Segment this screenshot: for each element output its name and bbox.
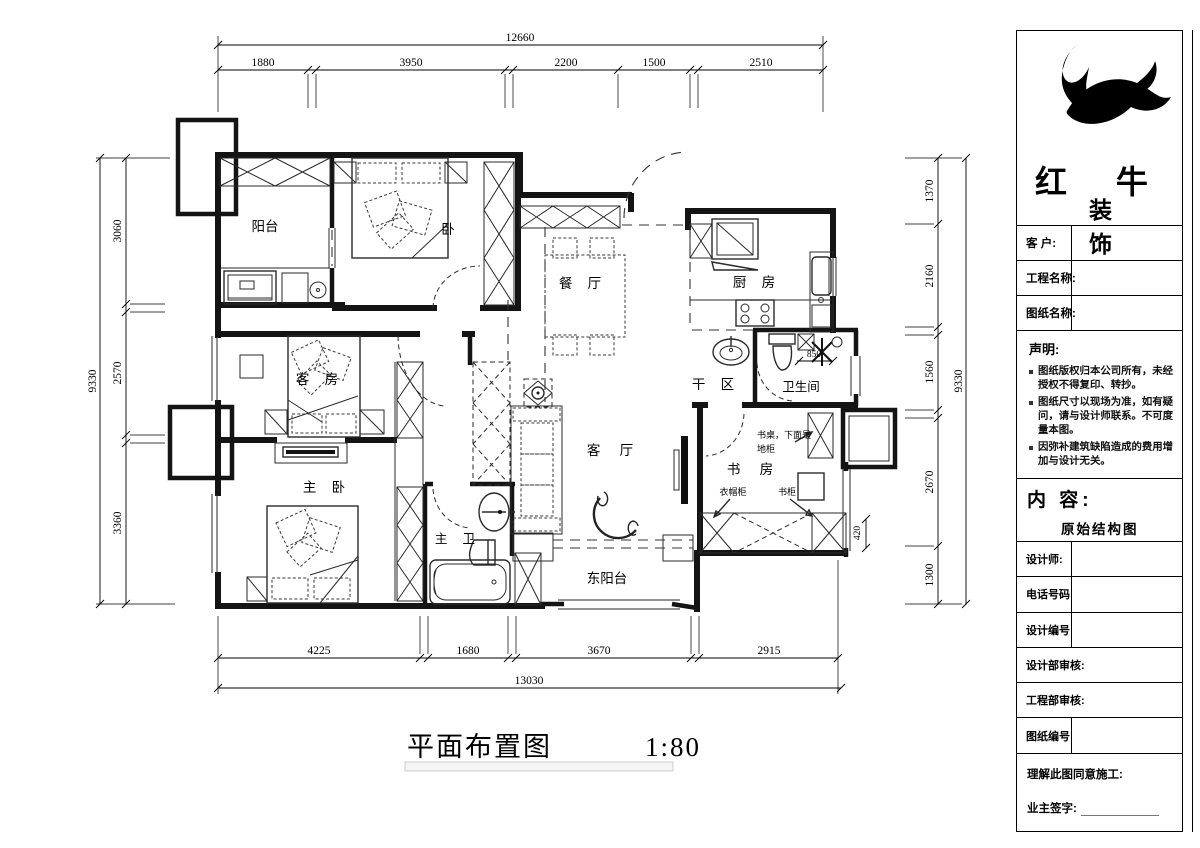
dim-left-1: 3060 [112,219,124,242]
room-label-east-balcony: 东阳台 [587,571,628,586]
annotation-bookcase: 书柜 [778,486,796,497]
field-drawing-label: 图纸名称: [1017,296,1072,330]
dim-right-total: 9330 [953,369,965,392]
dim-left-2: 2570 [112,361,124,384]
dim-study-420: 420 [853,526,863,541]
row-eng-review: 工程部审核: [1017,683,1182,718]
field-drawing: 图纸名称: [1017,296,1182,331]
statement-section: 声明: 图纸版权归本公司所有，未经授权不得复印、转抄。 图纸尺寸以现场为准，如有… [1017,331,1182,479]
room-label-balcony: 阳台 [252,219,279,234]
statement-item: 因弥补建筑缺陷造成的费用增加与设计无关。 [1029,441,1176,469]
statement-item: 图纸版权归本公司所有，未经授权不得复印、转抄。 [1029,365,1176,393]
content-section: 内 容: 原始结构图 [1017,479,1182,542]
content-value: 原始结构图 [1061,518,1176,538]
row-phone: 电话号码 [1017,577,1182,612]
floor-plan: 阳台 卧 餐 厅 厨 房 干 区 卫生间 客 房 主 卧 主 卫 客 厅 书 房… [0,0,1010,848]
dim-top-3: 2200 [555,57,578,69]
plan-title: 平面布置图 [407,732,552,762]
room-label-dining: 餐 厅 [559,276,607,291]
field-project-label: 工程名称: [1017,261,1072,295]
row-eng-review-label: 工程部审核: [1017,683,1089,717]
row-sheet-no: 图纸编号 [1017,718,1182,753]
dim-bottom-3: 3670 [588,645,611,657]
statement-item-text: 因弥补建筑缺陷造成的费用增加与设计无关。 [1038,441,1176,469]
field-project: 工程名称: [1017,261,1182,296]
row-design-no: 设计编号 [1017,613,1182,648]
room-label-master: 主 卧 [303,480,351,495]
red-bull-logo-icon [1025,39,1175,151]
field-client-label: 客 户: [1017,226,1072,260]
dim-top-2: 3950 [400,57,423,69]
dim-left-total: 9330 [87,369,99,392]
statement-item-text: 图纸尺寸以现场为准，如有疑问，请与设计师联系。不可度量本图。 [1038,396,1176,438]
annotation-desk-2: 地柜 [757,443,775,454]
dim-top-5: 2510 [750,57,773,69]
signature-section: 理解此图同意施工: 业主签字: [1017,754,1182,848]
dim-right-1: 1370 [924,179,936,202]
dim-right-3: 1560 [924,360,936,383]
row-designer: 设计师: [1017,542,1182,577]
room-label-kitchen: 厨 房 [733,275,781,290]
row-phone-label: 电话号码 [1017,577,1072,611]
dim-left-3: 3360 [112,511,124,534]
walls [170,120,895,612]
statement-item: 图纸尺寸以现场为准，如有疑问，请与设计师联系。不可度量本图。 [1029,396,1176,438]
owner-signature-label: 业主签字: [1027,800,1077,816]
dim-bottom-2: 1680 [457,645,480,657]
dim-right-4: 2670 [924,470,936,493]
sheet-title: 平面布置图 1:80 [405,732,701,771]
room-label-dry-area: 干 区 [692,377,740,392]
statement-item-text: 图纸版权归本公司所有，未经授权不得复印、转抄。 [1038,365,1176,393]
row-design-no-label: 设计编号 [1017,613,1072,647]
dim-top-total: 12660 [506,32,535,44]
drawing-sheet: 阳台 卧 餐 厅 厨 房 干 区 卫生间 客 房 主 卧 主 卫 客 厅 书 房… [0,0,1200,848]
plan-scale: 1:80 [645,732,701,762]
content-label: 内 容: [1027,485,1176,512]
brand-subname: 装 饰 [1089,191,1182,259]
room-label-guest: 客 房 [296,371,344,387]
logo-section: 红 牛 装 饰 [1017,39,1182,226]
statement-heading: 声明: [1029,339,1176,358]
agreement-text: 理解此图同意施工: [1027,766,1174,782]
room-label-bedroom: 卧 [441,222,455,237]
dim-right-5: 1300 [924,563,936,586]
row-design-review: 设计部审核: [1017,648,1182,683]
annotation-desk-1: 书桌，下面是 [757,429,811,440]
annotation-wardrobe: 衣帽柜 [719,486,746,497]
dim-top-4: 1500 [643,57,666,69]
room-label-living: 客 厅 [587,442,641,458]
dim-bottom-1: 4225 [308,645,331,657]
dim-right-2: 2160 [924,264,936,287]
room-label-study: 书 房 [727,462,781,477]
room-label-master-bath: 主 卫 [435,532,481,546]
room-label-bath: 卫生间 [782,380,820,394]
dim-bath-850: 850 [807,350,822,360]
dim-bottom-total: 13030 [515,675,544,687]
row-sheet-no-label: 图纸编号 [1017,718,1072,752]
dim-bottom-4: 2915 [758,645,781,657]
row-design-review-label: 设计部审核: [1017,648,1089,682]
sheet-border-line [1192,30,1193,832]
dim-top-1: 1880 [252,57,275,69]
owner-signature-line[interactable] [1081,803,1159,816]
row-designer-label: 设计师: [1017,542,1072,576]
title-block: 红 牛 装 饰 客 户: 工程名称: 图纸名称: 声明: 图纸版权归本公司所有，… [1016,30,1183,832]
